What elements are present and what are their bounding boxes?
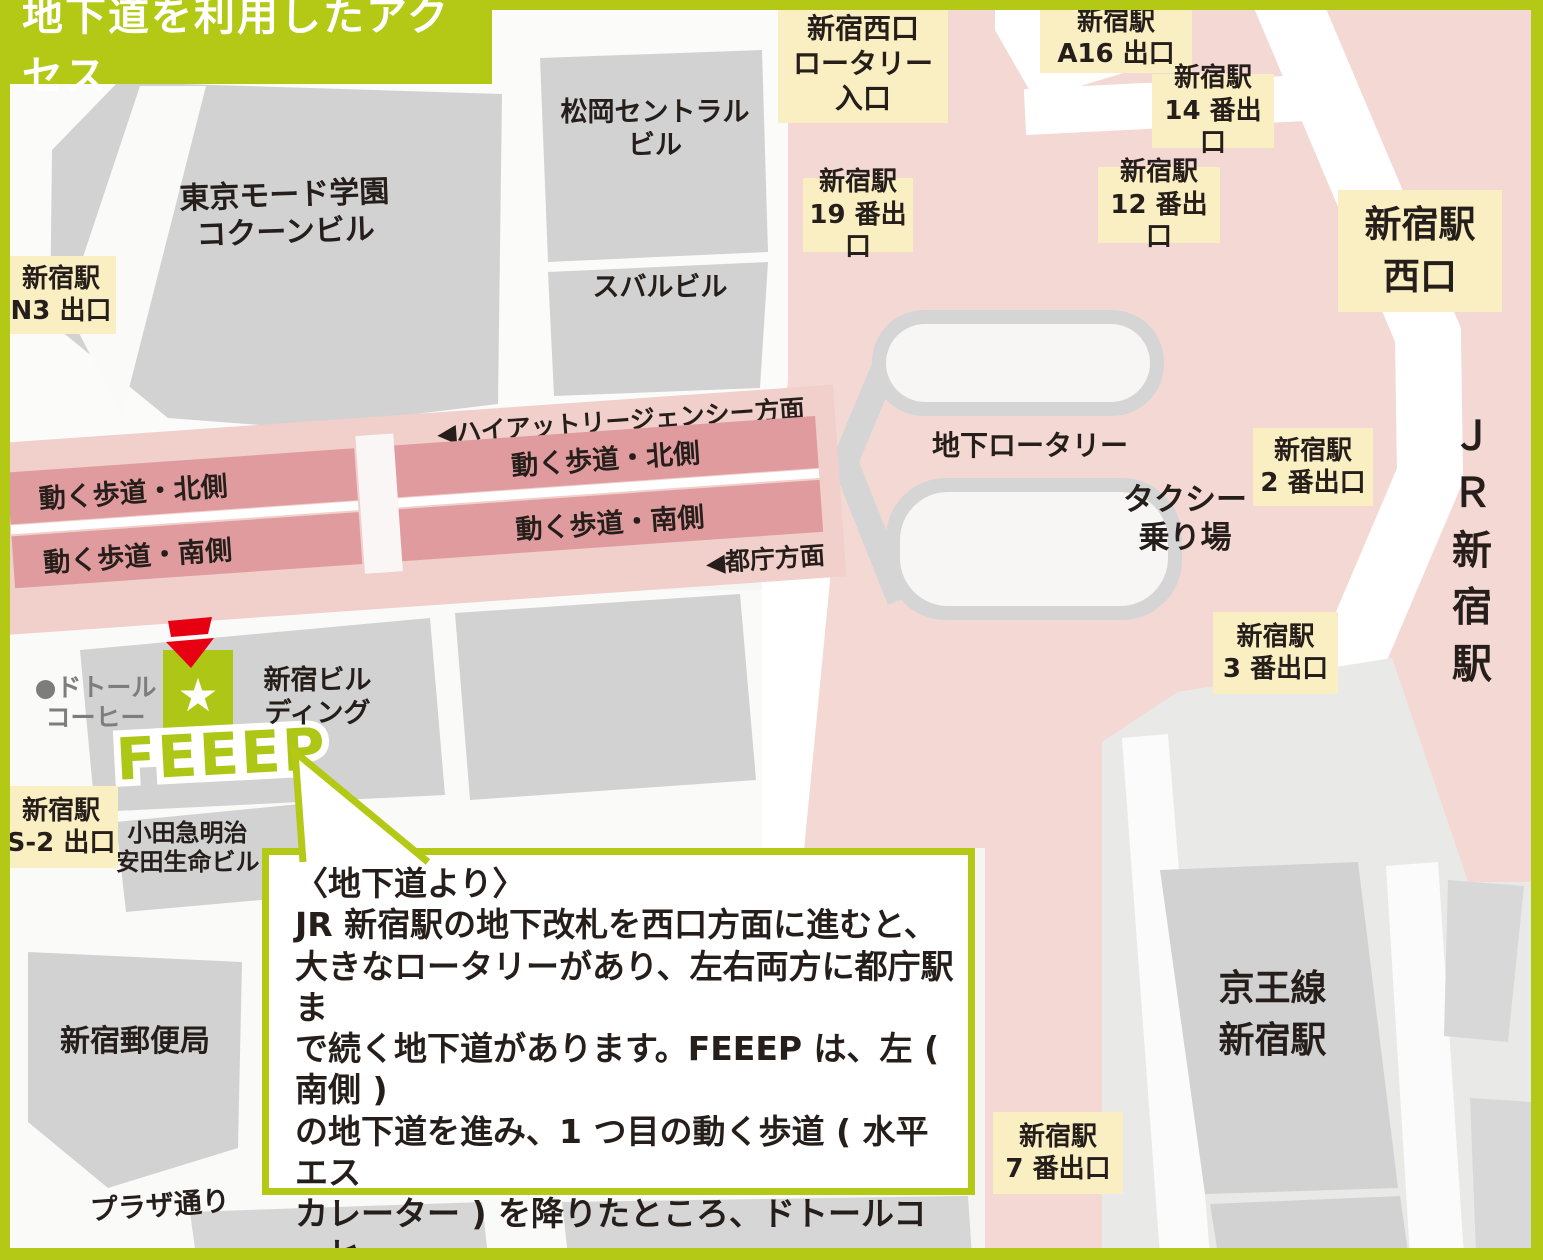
label-matsuoka-building: 松岡セントラル ビル — [545, 95, 765, 165]
feeep-location-pin — [158, 610, 228, 674]
direction-tocho: ◀都庁方面 — [634, 536, 826, 585]
exit-label-19: 新宿駅 19 番出口 — [803, 178, 913, 252]
map-title: 地下道を利用したアクセス — [22, 0, 492, 102]
underground-access-map: ◀ハイアットリージェンシー方面 動く歩道・北側 動く歩道・南側 動く歩道・北側 … — [0, 0, 1543, 1260]
label-taxi-stand: タクシー 乗り場 — [1095, 478, 1275, 562]
exit-label-14: 新宿駅 14 番出口 — [1152, 74, 1274, 148]
exit-label-west-rotary-entrance: 新宿西口 ロータリー 入口 — [778, 3, 948, 123]
speech-bubble-tail — [270, 740, 450, 870]
star-icon: ★ — [177, 672, 218, 718]
label-cocoon-tower: 東京モード学園 コクーンビル — [139, 165, 432, 265]
label-underground-rotary: 地下ロータリー — [920, 428, 1140, 464]
frame-left — [0, 0, 10, 1260]
exit-label-west-exit: 新宿駅 西口 — [1338, 190, 1502, 312]
label-subaru-building: スバルビル — [550, 268, 770, 308]
frame-bottom — [0, 1248, 1543, 1260]
exit-label-7: 新宿駅 7 番出口 — [993, 1112, 1123, 1194]
label-keio-line-station: 京王線 新宿駅 — [1175, 960, 1370, 1070]
label-shinjuku-building: 新宿ビル ディング — [255, 665, 380, 731]
directions-speech-bubble: 〈地下道より〉 JR 新宿駅の地下改札を西口方面に進むと、 大きなロータリーがあ… — [262, 848, 975, 1195]
exit-label-3: 新宿駅 3 番出口 — [1213, 612, 1338, 694]
label-doutor-coffee: ●ドトール コーヒー — [28, 672, 163, 734]
keio-station-building-south — [1210, 1196, 1408, 1254]
label-odakyu-building: 小田急明治 安田生命ビル — [110, 818, 265, 878]
frame-right — [1531, 0, 1543, 1260]
building-east-of-shinjuku-building — [455, 594, 756, 800]
exit-label-n3: 新宿駅 N3 出口 — [6, 256, 116, 334]
building-southeast-corner — [1470, 1098, 1532, 1252]
map-title-banner: 地下道を利用したアクセス — [0, 0, 492, 84]
rotary-island-north — [886, 324, 1150, 402]
label-post-office: 新宿郵便局 — [35, 1022, 235, 1062]
exit-label-2: 新宿駅 2 番出口 — [1253, 428, 1373, 506]
label-jr-shinjuku-station: ＪＲ新宿駅 — [1443, 415, 1497, 775]
exit-label-12: 新宿駅 12 番出口 — [1098, 167, 1220, 243]
directions-text: 〈地下道より〉 JR 新宿駅の地下改札を西口方面に進むと、 大きなロータリーがあ… — [295, 863, 955, 1260]
exit-label-s2: 新宿駅 S-2 出口 — [4, 786, 118, 868]
